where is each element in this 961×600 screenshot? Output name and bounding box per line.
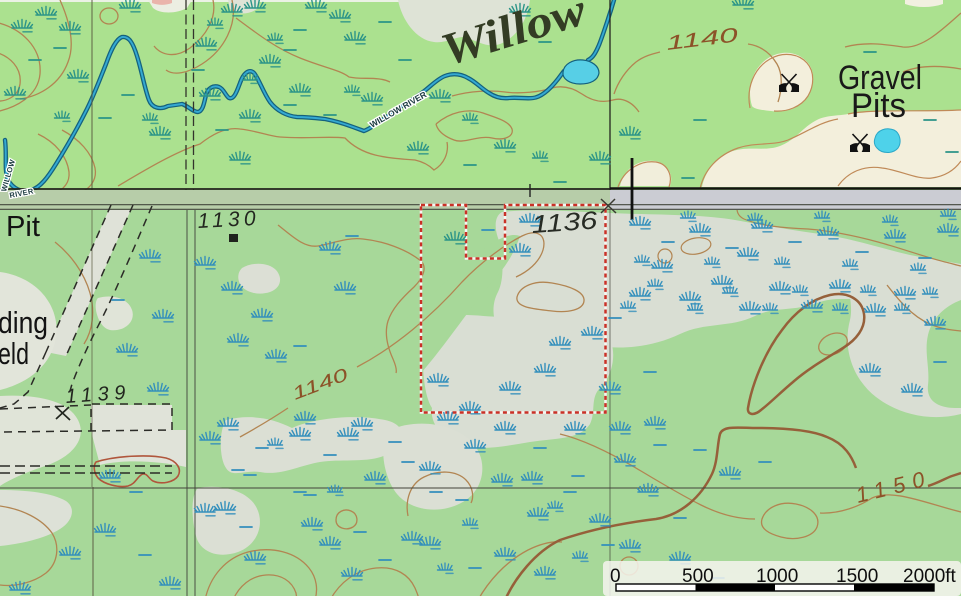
svg-text:eld: eld [0,336,29,371]
svg-text:Pit: Pit [6,211,40,243]
svg-text:1136: 1136 [530,206,598,239]
svg-text:ding: ding [0,305,48,340]
svg-text:Pits: Pits [851,87,906,125]
